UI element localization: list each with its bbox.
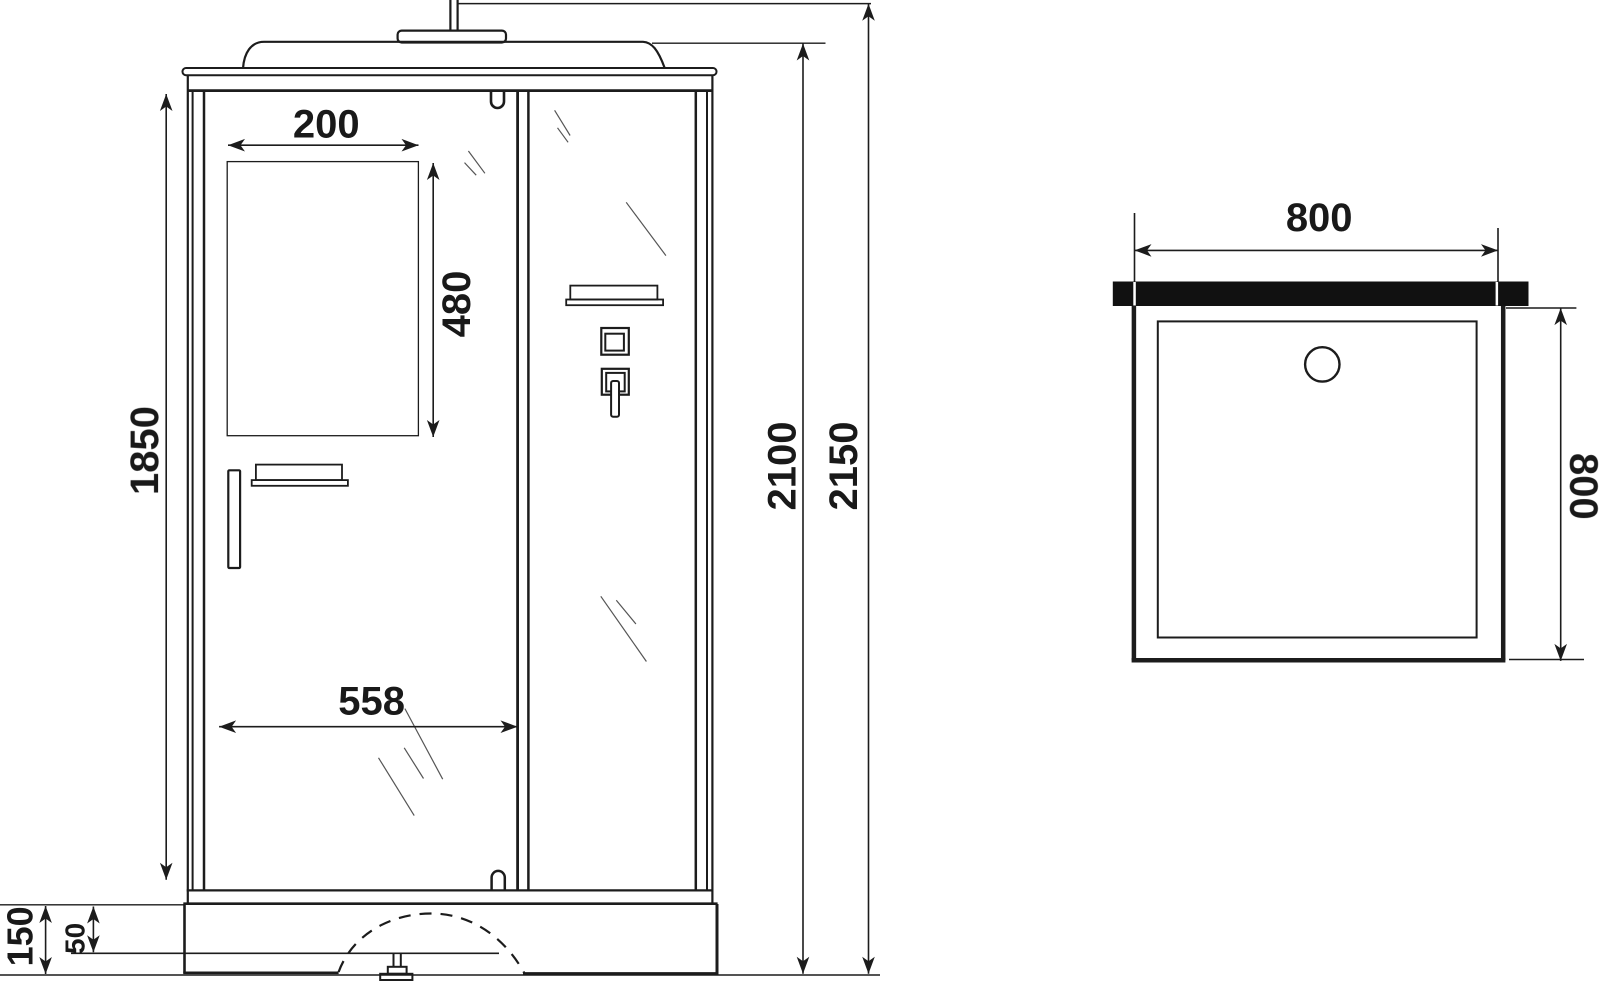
- svg-text:800: 800: [1561, 453, 1600, 520]
- svg-text:50: 50: [60, 923, 91, 954]
- svg-text:200: 200: [293, 103, 360, 147]
- svg-text:150: 150: [0, 906, 41, 966]
- svg-text:800: 800: [1286, 196, 1353, 240]
- svg-text:2150: 2150: [822, 422, 866, 511]
- svg-text:1850: 1850: [123, 406, 167, 495]
- svg-text:558: 558: [338, 680, 405, 724]
- svg-text:480: 480: [435, 271, 479, 338]
- svg-text:2100: 2100: [760, 422, 804, 511]
